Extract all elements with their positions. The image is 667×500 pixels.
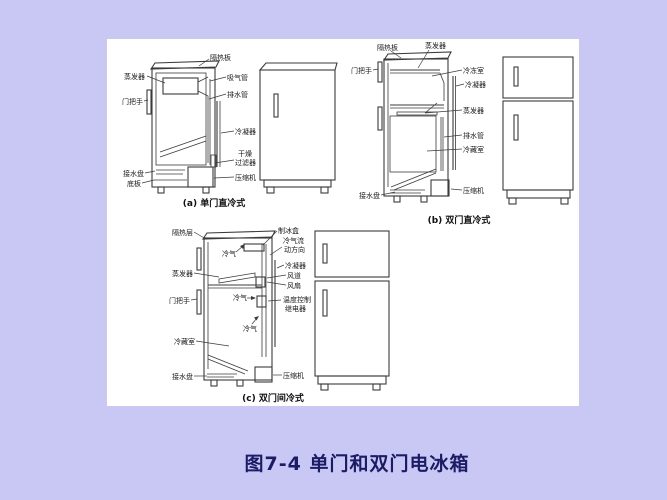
- thermostat-box: [257, 296, 266, 307]
- label-evaporator: 蒸发器: [172, 269, 193, 278]
- foot: [373, 384, 380, 390]
- label-cold-air-top: 冷气: [222, 249, 236, 258]
- cold-room-liner: [390, 116, 436, 172]
- label-dryer-filter-line1: 干燥: [238, 149, 252, 158]
- label-insulation-layer: 隔热层: [172, 228, 193, 237]
- label-condenser: 冷凝器: [235, 127, 256, 136]
- suction-pipe-line: [198, 77, 208, 82]
- base: [318, 376, 386, 384]
- evaporator-slab: [219, 273, 255, 283]
- label-drain-pipe: 排水管: [227, 90, 248, 99]
- label-water-tray: 接水盘: [359, 191, 380, 200]
- label-air-duct: 风道: [287, 271, 301, 280]
- foot: [561, 198, 568, 204]
- fridge-door: [503, 101, 573, 190]
- double-door-fridge-drawing: [503, 57, 573, 204]
- label-fan: 风扇: [287, 281, 301, 290]
- door-handle-bar: [197, 290, 201, 314]
- page-background: { "colors": { "background": "#c9c7f4", "…: [0, 0, 667, 500]
- label-door-handle: 门把手: [122, 97, 143, 106]
- refrigerator-diagram-svg: 隔热板 蒸发器 门把手 吸气管 排水管 冷凝器 干燥 过滤器 压缩机 接水盘: [107, 39, 579, 406]
- fridge-door: [315, 281, 389, 376]
- label-water-tray: 接水盘: [172, 372, 193, 381]
- label-water-tray: 接水盘: [123, 169, 144, 178]
- foot: [267, 187, 274, 193]
- foot: [321, 384, 328, 390]
- label-refrigerating-compartment: 冷藏室: [174, 337, 195, 346]
- label-ice-box: 制冰盒: [278, 226, 299, 235]
- foot: [321, 187, 328, 193]
- frost-free-cutaway-drawing: [197, 231, 275, 386]
- label-compressor: 压缩机: [463, 186, 484, 195]
- foot: [421, 196, 427, 202]
- diagram-b-caption: (b) 双门直冷式: [428, 214, 491, 226]
- door-handle-bar: [378, 107, 382, 130]
- label-dryer-filter-line2: 过滤器: [235, 158, 256, 167]
- label-compressor: 压缩机: [235, 173, 256, 182]
- label-door-handle: 门把手: [351, 66, 372, 75]
- double-door-cutaway-drawing: [378, 52, 456, 202]
- foot: [237, 380, 243, 386]
- evaporator-box: [163, 78, 198, 94]
- label-airflow-line2: 动方向: [284, 245, 305, 254]
- label-thermostat-line2: 继电器: [285, 304, 306, 313]
- label-condenser: 冷凝器: [465, 80, 486, 89]
- compressor-box: [188, 167, 213, 187]
- single-door-fridge-drawing: [260, 63, 337, 193]
- label-evaporator-top: 蒸发器: [425, 41, 446, 50]
- label-insulation-board: 隔热板: [377, 43, 398, 52]
- foot: [211, 380, 217, 386]
- figure-panel: 隔热板 蒸发器 门把手 吸气管 排水管 冷凝器 干燥 过滤器 压缩机 接水盘: [107, 39, 579, 406]
- base: [264, 180, 331, 187]
- compressor-box: [431, 180, 449, 196]
- door-handle-bar: [378, 62, 382, 82]
- diagram-a: 隔热板 蒸发器 门把手 吸气管 排水管 冷凝器 干燥 过滤器 压缩机 接水盘: [122, 53, 337, 209]
- foot: [394, 196, 400, 202]
- label-cold-air-low: 冷气: [243, 324, 257, 333]
- label-bottom-plate: 底板: [127, 179, 141, 188]
- diagram-b: 隔热板 蒸发器 门把手 冷冻室 冷凝器 蒸发器 排水管 冷藏室 压缩机 接水盘: [351, 41, 573, 226]
- label-freezer-compartment: 冷冻室: [463, 66, 484, 75]
- door-handle-bar: [323, 244, 327, 263]
- diagram-c-caption: (c) 双门间冷式: [242, 392, 304, 404]
- label-cold-air-mid: 冷气: [233, 293, 247, 302]
- base: [507, 190, 570, 198]
- label-airflow-line1: 冷气流: [283, 236, 304, 245]
- frost-free-fridge-drawing: [315, 231, 389, 390]
- label-thermostat-line1: 温度控制: [283, 295, 311, 304]
- door-handle-bar: [514, 115, 518, 140]
- foot: [158, 187, 164, 193]
- ice-box: [244, 244, 264, 251]
- label-door-handle: 门把手: [169, 296, 190, 305]
- drain-pipe-line: [198, 91, 208, 163]
- door-handle-bar: [514, 67, 518, 86]
- diagram-a-caption: (a) 单门直冷式: [183, 197, 245, 209]
- label-condenser: 冷凝器: [285, 261, 306, 270]
- freezer-door: [315, 231, 389, 277]
- diagram-c-labels: 隔热层 制冰盒 冷气流 动方向 冷气 冷凝器 蒸发器 风道 风扇 冷气 门把手: [169, 226, 311, 381]
- label-refrigerating-compartment: 冷藏室: [463, 145, 484, 154]
- door-handle-bar: [274, 94, 278, 117]
- single-door-cutaway-drawing: [147, 61, 220, 193]
- label-insulation-board: 隔热板: [210, 53, 231, 62]
- label-drain-pipe: 排水管: [463, 131, 484, 140]
- label-compressor: 压缩机: [283, 371, 304, 380]
- label-evaporator-mid: 蒸发器: [463, 106, 484, 115]
- foot: [509, 198, 516, 204]
- foot: [203, 187, 209, 193]
- figure-caption: 图7-4 单门和双门电冰箱: [245, 449, 470, 476]
- door-handle-bar: [197, 248, 201, 270]
- diagram-c: 隔热层 制冰盒 冷气流 动方向 冷气 冷凝器 蒸发器 风道 风扇 冷气 门把手: [169, 226, 389, 404]
- door-handle-bar: [323, 290, 327, 316]
- door-handle-bar: [147, 90, 151, 114]
- label-suction-pipe: 吸气管: [227, 73, 248, 82]
- label-evaporator: 蒸发器: [124, 72, 145, 81]
